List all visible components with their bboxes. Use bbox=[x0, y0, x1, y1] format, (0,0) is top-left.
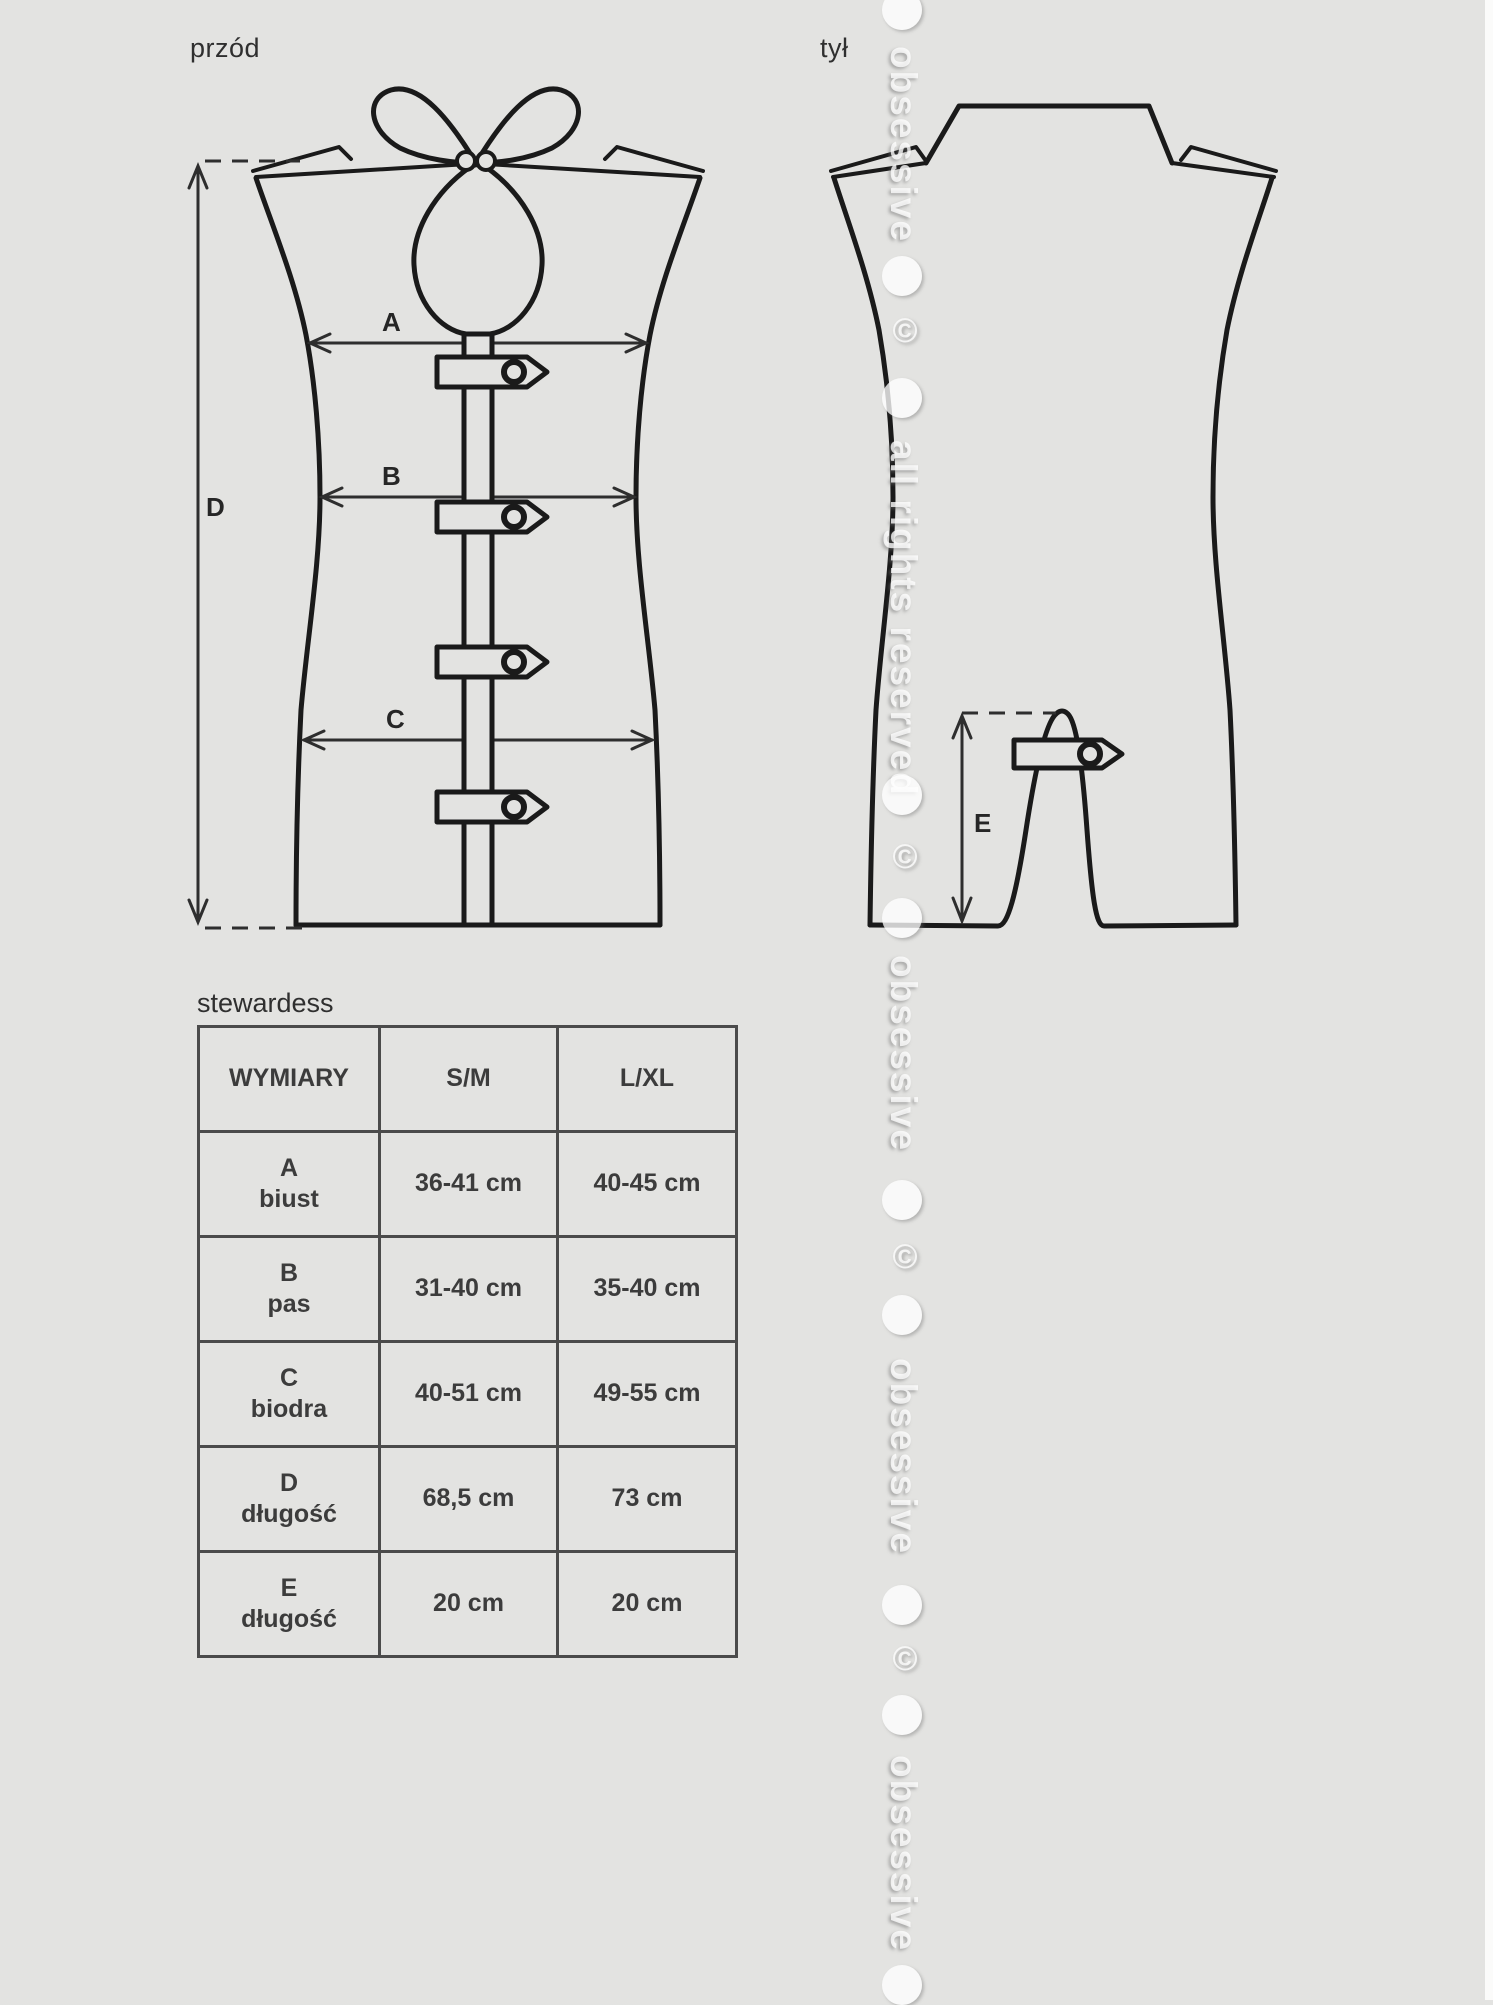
back-slit-strap bbox=[1014, 740, 1122, 768]
product-name: stewardess bbox=[197, 988, 334, 1019]
measure-label-cell: Edługość bbox=[199, 1552, 380, 1657]
eyelet-icon bbox=[504, 507, 524, 527]
back-view-drawing: E bbox=[831, 106, 1276, 926]
size-table-header-2: L/XL bbox=[558, 1027, 737, 1132]
size-sm-cell: 68,5 cm bbox=[380, 1447, 558, 1552]
size-sm-cell: 20 cm bbox=[380, 1552, 558, 1657]
size-table-header-0: WYMIARY bbox=[199, 1027, 380, 1132]
front-belt-tab-2 bbox=[437, 502, 547, 532]
back-collar bbox=[926, 106, 1172, 163]
back-view-label: tył bbox=[820, 33, 849, 64]
table-row: Cbiodra40-51 cm49-55 cm bbox=[199, 1342, 737, 1447]
front-left-edge bbox=[256, 178, 320, 925]
front-right-epaulette bbox=[605, 147, 703, 171]
table-row: Ddługość68,5 cm73 cm bbox=[199, 1447, 737, 1552]
front-view-drawing: A B C bbox=[189, 89, 703, 928]
dimension-label-b: B bbox=[382, 461, 401, 491]
back-left-edge bbox=[834, 178, 893, 925]
front-belt-tab-1 bbox=[437, 357, 547, 387]
back-right-edge bbox=[1213, 178, 1272, 925]
size-table-header-row: WYMIARYS/ML/XL bbox=[199, 1027, 737, 1132]
eyelet-icon bbox=[504, 362, 524, 382]
measure-label-cell: Bpas bbox=[199, 1237, 380, 1342]
front-center-strap bbox=[464, 334, 492, 925]
bow-button-right bbox=[477, 152, 495, 170]
front-left-epaulette bbox=[253, 147, 351, 171]
table-row: Edługość20 cm20 cm bbox=[199, 1552, 737, 1657]
eyelet-icon bbox=[1080, 744, 1100, 764]
size-lxl-cell: 73 cm bbox=[558, 1447, 737, 1552]
front-view-label: przód bbox=[190, 33, 260, 64]
front-left-shoulder-seam bbox=[256, 164, 468, 177]
table-row: Abiust36-41 cm40-45 cm bbox=[199, 1132, 737, 1237]
dimension-label-d: D bbox=[206, 492, 225, 522]
front-belt-tab-3 bbox=[437, 647, 547, 677]
front-belt-tab-4 bbox=[437, 792, 547, 822]
size-lxl-cell: 35-40 cm bbox=[558, 1237, 737, 1342]
back-left-epaulette bbox=[831, 147, 926, 171]
front-right-edge bbox=[636, 178, 700, 925]
size-table-header-1: S/M bbox=[380, 1027, 558, 1132]
front-keyhole-cutout bbox=[414, 165, 542, 334]
eyelet-icon bbox=[504, 797, 524, 817]
size-sm-cell: 36-41 cm bbox=[380, 1132, 558, 1237]
size-lxl-cell: 20 cm bbox=[558, 1552, 737, 1657]
size-sm-cell: 31-40 cm bbox=[380, 1237, 558, 1342]
page: { "theme":{ "bg":"#e3e3e1", "line":"#1a1… bbox=[0, 0, 1493, 2000]
dimension-arrow-d: D bbox=[189, 161, 312, 928]
page-right-edge bbox=[1485, 0, 1493, 2000]
size-sm-cell: 40-51 cm bbox=[380, 1342, 558, 1447]
size-table: WYMIARYS/ML/XL Abiust36-41 cm40-45 cmBpa… bbox=[197, 1025, 738, 1658]
table-row: Bpas31-40 cm35-40 cm bbox=[199, 1237, 737, 1342]
bow-button-left bbox=[457, 152, 475, 170]
size-lxl-cell: 49-55 cm bbox=[558, 1342, 737, 1447]
dimension-label-c: C bbox=[386, 704, 405, 734]
dimension-label-e: E bbox=[974, 808, 991, 838]
size-lxl-cell: 40-45 cm bbox=[558, 1132, 737, 1237]
measure-label-cell: Abiust bbox=[199, 1132, 380, 1237]
measure-label-cell: Cbiodra bbox=[199, 1342, 380, 1447]
measure-label-cell: Ddługość bbox=[199, 1447, 380, 1552]
eyelet-icon bbox=[504, 652, 524, 672]
size-table-body: Abiust36-41 cm40-45 cmBpas31-40 cm35-40 … bbox=[199, 1132, 737, 1657]
dimension-label-a: A bbox=[382, 307, 401, 337]
front-right-shoulder-seam bbox=[486, 164, 700, 177]
